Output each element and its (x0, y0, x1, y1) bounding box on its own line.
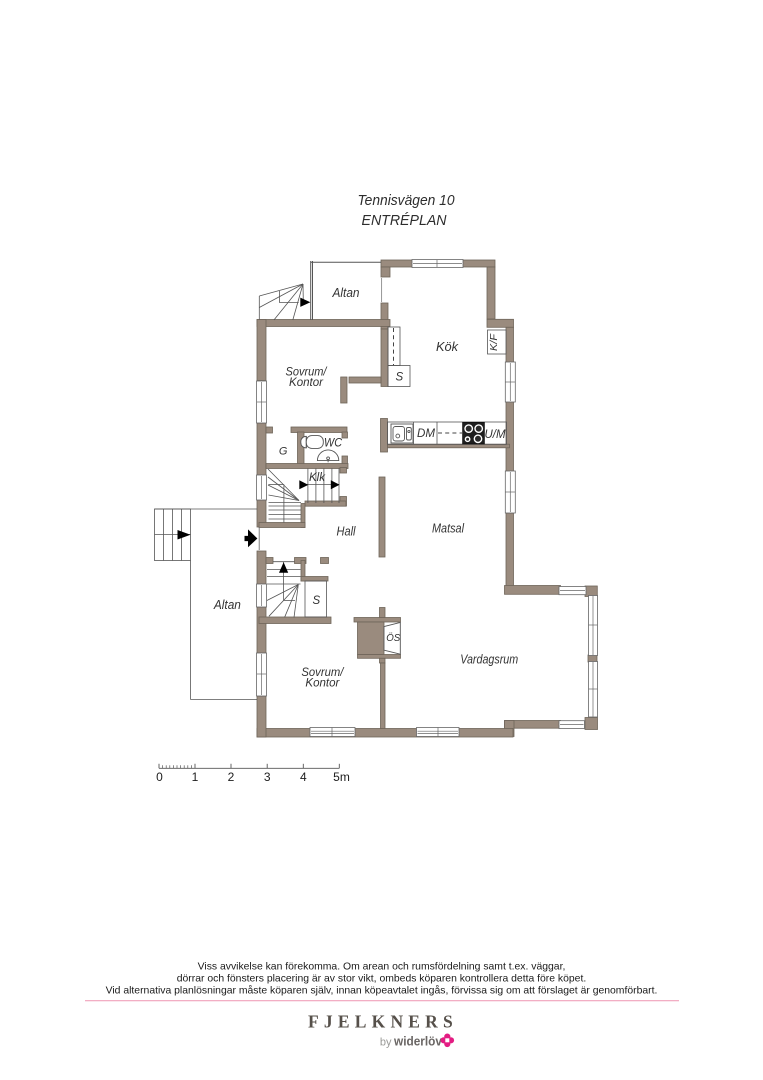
svg-text:0: 0 (156, 770, 163, 784)
svg-text:Klk: Klk (309, 472, 326, 484)
svg-text:Kontor: Kontor (289, 377, 324, 389)
svg-text:DM: DM (417, 428, 435, 440)
svg-text:Tennisvägen 10: Tennisvägen 10 (358, 193, 455, 209)
svg-text:ENTRÉPLAN: ENTRÉPLAN (362, 212, 448, 229)
svg-text:Kontor: Kontor (305, 678, 340, 690)
svg-text:Matsal: Matsal (432, 521, 465, 536)
svg-text:by: by (380, 1037, 392, 1049)
svg-text:1: 1 (192, 770, 199, 784)
svg-text:Altan: Altan (213, 597, 241, 612)
svg-text:G: G (279, 446, 288, 458)
svg-text:Hall: Hall (337, 524, 357, 539)
svg-text:K/F: K/F (488, 333, 500, 351)
svg-text:WC: WC (324, 435, 342, 449)
svg-text:Kök: Kök (436, 339, 459, 354)
svg-text:3: 3 (264, 770, 271, 784)
svg-text:2: 2 (228, 770, 235, 784)
svg-text:S: S (395, 372, 403, 384)
svg-text:S: S (312, 595, 320, 607)
svg-text:Vardagsrum: Vardagsrum (460, 652, 518, 667)
svg-text:Vid alternativa planlösningar: Vid alternativa planlösningar måste köpa… (106, 985, 658, 997)
svg-text:FJELKNERS: FJELKNERS (308, 1012, 458, 1032)
svg-text:Altan: Altan (332, 285, 360, 300)
svg-text:Viss avvikelse kan förekomma.: Viss avvikelse kan förekomma. Om arean o… (198, 962, 566, 973)
svg-text:4: 4 (300, 770, 307, 784)
svg-text:dörrar och fönsters placering: dörrar och fönsters placering är av stor… (177, 974, 586, 985)
svg-text:5m: 5m (333, 770, 350, 784)
svg-text:U/M: U/M (485, 429, 506, 441)
svg-text:widerlöv: widerlöv (393, 1034, 443, 1049)
svg-text:ÖS: ÖS (386, 632, 400, 644)
